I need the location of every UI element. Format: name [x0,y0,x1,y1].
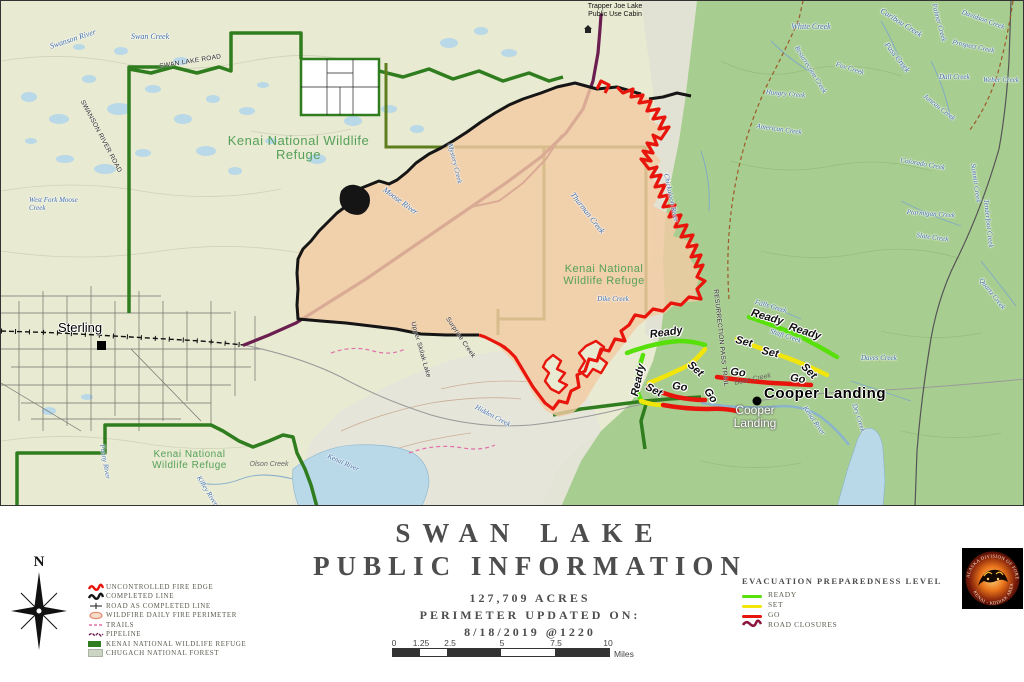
legend-label: COMPLETED LINE [106,592,174,600]
legend-row: TRAILS [88,620,246,629]
chugach-forest-swatch [88,649,106,657]
evacuation-legend: EVACUATION PREPAREDNESS LEVEL READY SET … [742,576,942,629]
evac-label: GO [768,610,780,619]
sterling-marker [97,341,106,350]
forestry-logo: ALASKA DIVISION OF FORESTRY KENAI - KODI… [962,548,1023,609]
map-canvas: Swanson River Swan Creek SWAN LAKE ROAD … [0,0,1024,506]
legend-label: ROAD AS COMPLETED LINE [106,602,211,610]
map-legend: UNCONTROLLED FIRE EDGE COMPLETED LINE RO… [88,582,246,658]
scale-tick: 1.25 [413,638,430,648]
evac-row: GO [742,609,942,619]
scale-tick: 7.5 [550,638,562,648]
evac-row: READY [742,589,942,599]
cooper-landing-marker [753,397,762,406]
legend-label: UNCONTROLLED FIRE EDGE [106,583,213,591]
evac-row: SET [742,599,942,609]
uncontrolled-fire-edge-icon [88,583,106,591]
legend-row: CHUGACH NATIONAL FOREST [88,649,246,658]
evac-label: ROAD CLOSURES [768,620,837,629]
legend-label: WILDFIRE DAILY FIRE PERIMETER [106,611,237,619]
evac-row: ROAD CLOSURES [742,619,942,629]
scale-bar-segments [392,648,610,657]
pipeline-icon [88,631,106,638]
swan-lake-fire-map-page: Swanson River Swan Creek SWAN LAKE ROAD … [0,0,1024,682]
map-footer: N UNCONTROLLED FIRE EDGE COMPLETED LINE … [0,506,1024,682]
legend-label: PIPELINE [106,630,141,638]
acreage-text: 127,709 ACRES [280,591,780,606]
scale-tick: 0 [392,638,397,648]
legend-label: TRAILS [106,621,134,629]
legend-label: KENAI NATIONAL WILDLIFE REFUGE [106,640,246,648]
daily-fire-perimeter-icon [88,611,106,620]
scale-tick: 10 [603,638,612,648]
evacuation-legend-title: EVACUATION PREPAREDNESS LEVEL [742,576,942,586]
evac-label: READY [768,590,797,599]
kenai-refuge-swatch [88,641,106,647]
legend-row: PIPELINE [88,630,246,639]
north-label: N [34,554,45,570]
scale-tick: 5 [500,638,505,648]
scale-tick: 2.5 [444,638,456,648]
road-closures-icon [742,615,768,633]
scale-unit: Miles [614,649,634,659]
legend-row: ROAD AS COMPLETED LINE [88,601,246,610]
map-artwork [1,1,1024,506]
map-title-line1: SWAN LAKE [280,518,780,549]
title-block: SWAN LAKE PUBLIC INFORMATION 127,709 ACR… [280,518,780,640]
north-arrow: N [8,552,70,656]
completed-line-icon [88,592,106,600]
scale-ticks: 0 1.25 2.5 5 7.5 10 [392,638,632,648]
legend-row: UNCONTROLLED FIRE EDGE [88,582,246,591]
scale-bar: 0 1.25 2.5 5 7.5 10 Miles [392,638,632,657]
legend-row: KENAI NATIONAL WILDLIFE REFUGE [88,639,246,648]
legend-row: WILDFIRE DAILY FIRE PERIMETER [88,611,246,620]
perimeter-updated-label: PERIMETER UPDATED ON: [280,608,780,623]
legend-label: CHUGACH NATIONAL FOREST [106,649,219,657]
legend-row: COMPLETED LINE [88,592,246,601]
map-title-line2: PUBLIC INFORMATION [280,551,780,582]
evac-label: SET [768,600,783,609]
trails-icon [88,622,106,628]
parcel-inholding [301,59,379,115]
road-as-completed-line-icon [88,602,106,610]
